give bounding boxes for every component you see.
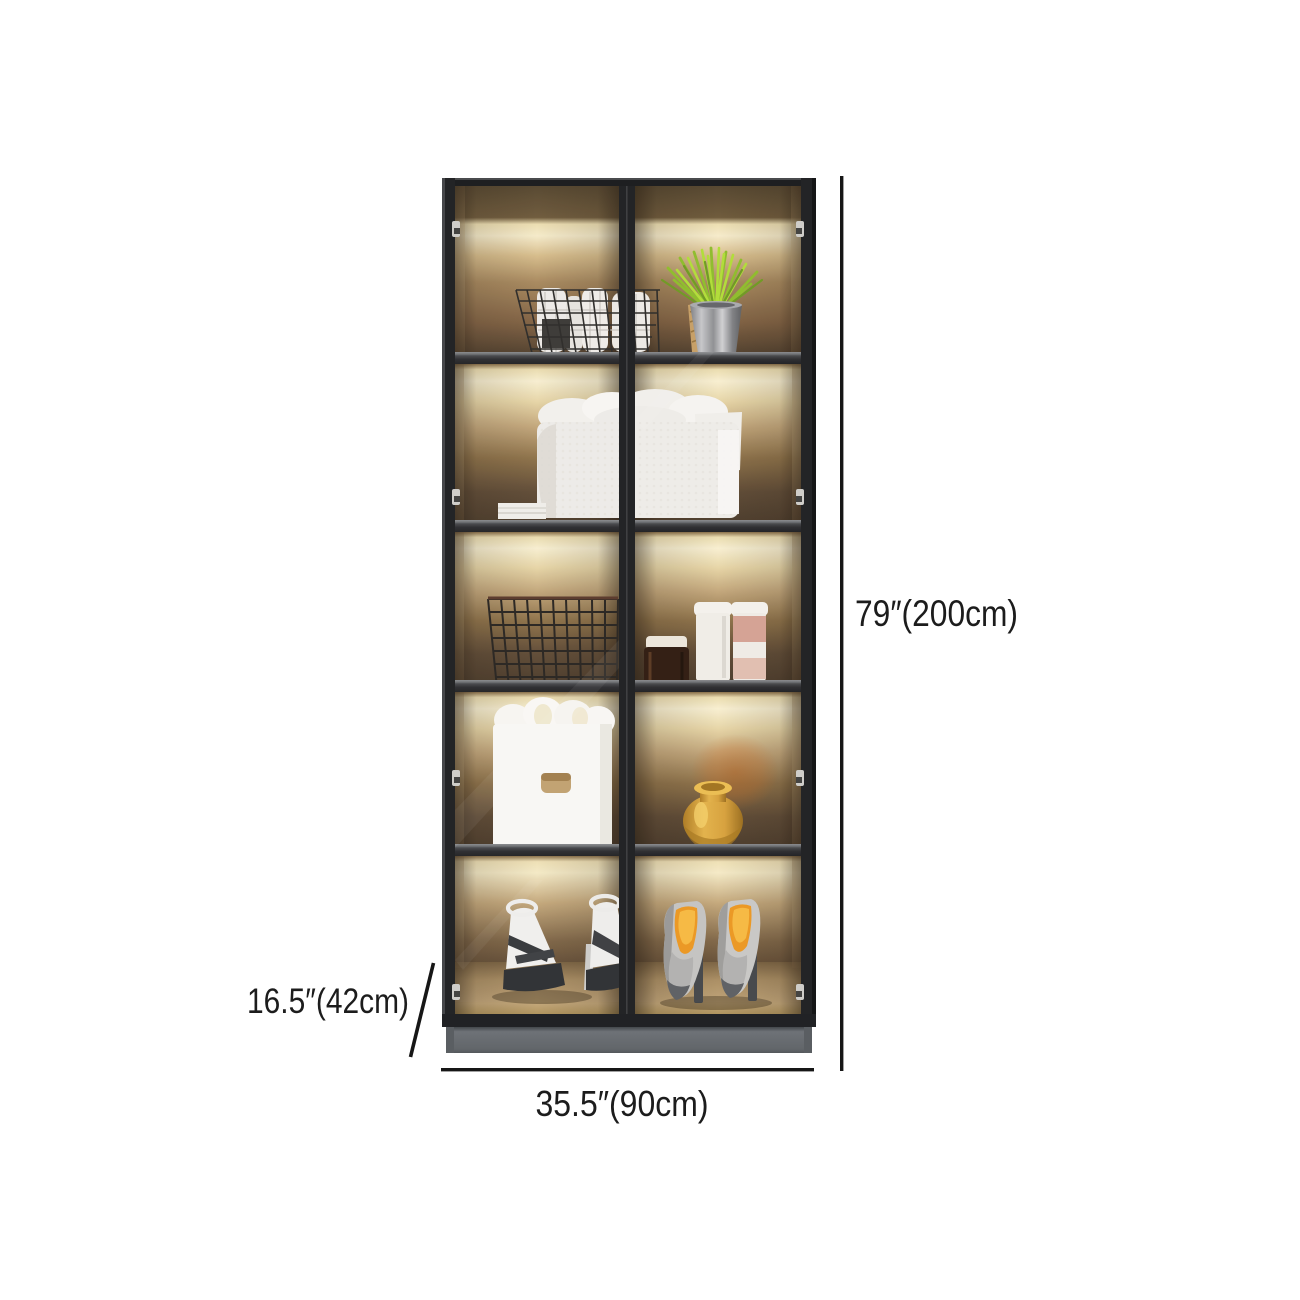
svg-text:79″(200cm): 79″(200cm) — [855, 593, 1018, 634]
svg-text:16.5″(42cm): 16.5″(42cm) — [247, 981, 409, 1021]
svg-text:35.5″(90cm): 35.5″(90cm) — [536, 1083, 709, 1124]
